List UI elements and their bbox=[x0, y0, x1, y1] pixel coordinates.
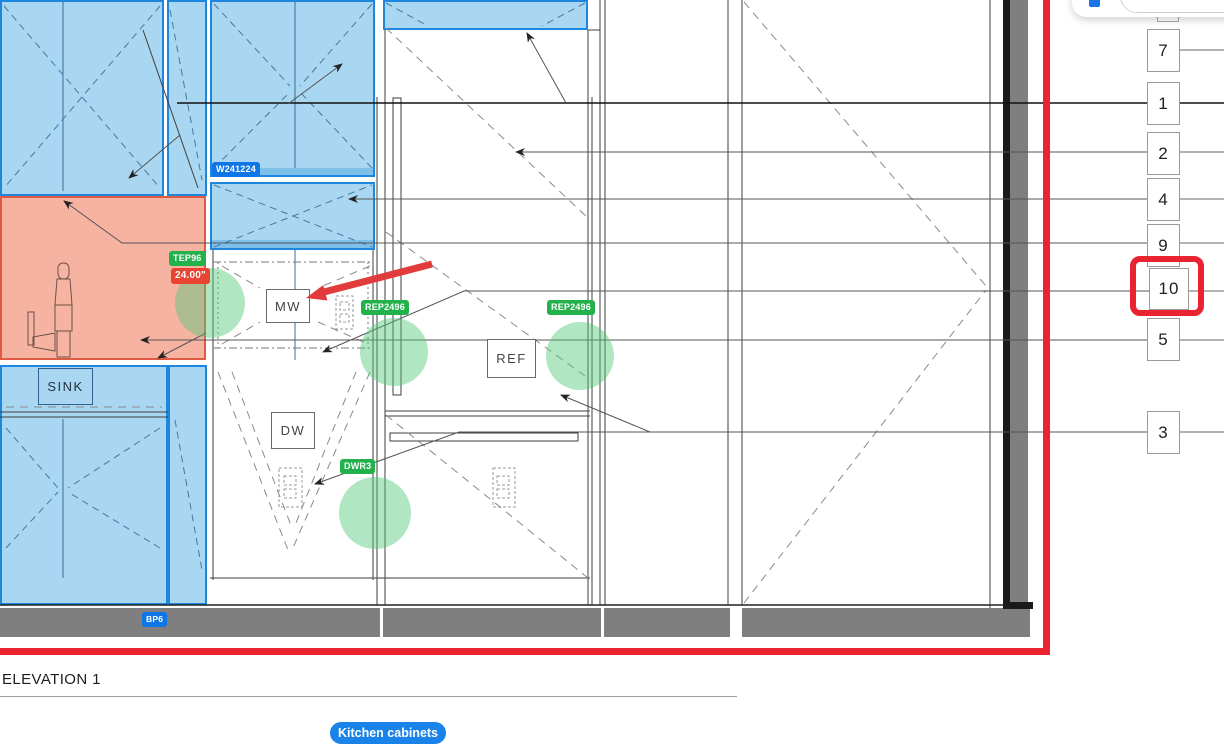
toe-kick-and-wall-fills bbox=[0, 0, 1033, 637]
faucet-drawing bbox=[28, 263, 72, 357]
refrigerator-label: REF bbox=[496, 351, 527, 366]
count-marker[interactable] bbox=[339, 477, 411, 549]
callout-box-7: 7 bbox=[1147, 29, 1180, 72]
countertop-depth-tag[interactable]: 24.00" bbox=[171, 268, 210, 284]
count-marker[interactable] bbox=[546, 322, 614, 390]
callout-box-1: 1 bbox=[1147, 82, 1180, 125]
countertop-tag[interactable]: TEP96 bbox=[169, 251, 206, 266]
microwave-label-box: MW bbox=[266, 289, 310, 323]
callout-leader-arrows bbox=[64, 33, 1150, 484]
microwave-label: MW bbox=[275, 299, 301, 314]
viewport-frame-bottom bbox=[0, 648, 1050, 655]
app-icon[interactable] bbox=[1089, 0, 1100, 7]
sink-label: SINK bbox=[47, 379, 83, 394]
rep-tag-left[interactable]: REP2496 bbox=[361, 300, 409, 315]
sink-label-box: SINK bbox=[38, 368, 93, 405]
callout-box-2: 2 bbox=[1147, 132, 1180, 175]
title-underline bbox=[0, 696, 737, 697]
category-chip[interactable]: Kitchen cabinets bbox=[330, 722, 446, 744]
count-marker[interactable] bbox=[360, 318, 428, 386]
takeoff-viewer: MW DW REF SINK TEP96 24.00" W241224 REP2… bbox=[0, 0, 1224, 746]
pantry-door-dashes bbox=[6, 2, 986, 603]
rep-tag-right[interactable]: REP2496 bbox=[547, 300, 595, 315]
callout-lines-right bbox=[1180, 50, 1224, 432]
elevation-drawing-linework bbox=[0, 0, 1224, 746]
drawer-tag[interactable]: DWR3 bbox=[340, 459, 375, 474]
wall-cabinet-tag[interactable]: W241224 bbox=[212, 162, 260, 177]
dishwasher-label-box: DW bbox=[271, 412, 315, 449]
elevation-title: ELEVATION 1 bbox=[2, 671, 101, 688]
base-panel-tag[interactable]: BP6 bbox=[142, 612, 167, 627]
structure-lines bbox=[0, 0, 990, 608]
refrigerator-label-box: REF bbox=[487, 339, 536, 378]
viewport-frame-right bbox=[1043, 0, 1050, 655]
callout-box-5: 5 bbox=[1147, 318, 1180, 361]
callout-box-3: 3 bbox=[1147, 411, 1180, 454]
callout-10-highlight-annotation bbox=[1130, 256, 1204, 316]
callout-box-4: 4 bbox=[1147, 178, 1180, 221]
search-panel bbox=[1072, 0, 1224, 17]
dishwasher-label: DW bbox=[281, 423, 306, 438]
search-input[interactable] bbox=[1120, 0, 1224, 13]
